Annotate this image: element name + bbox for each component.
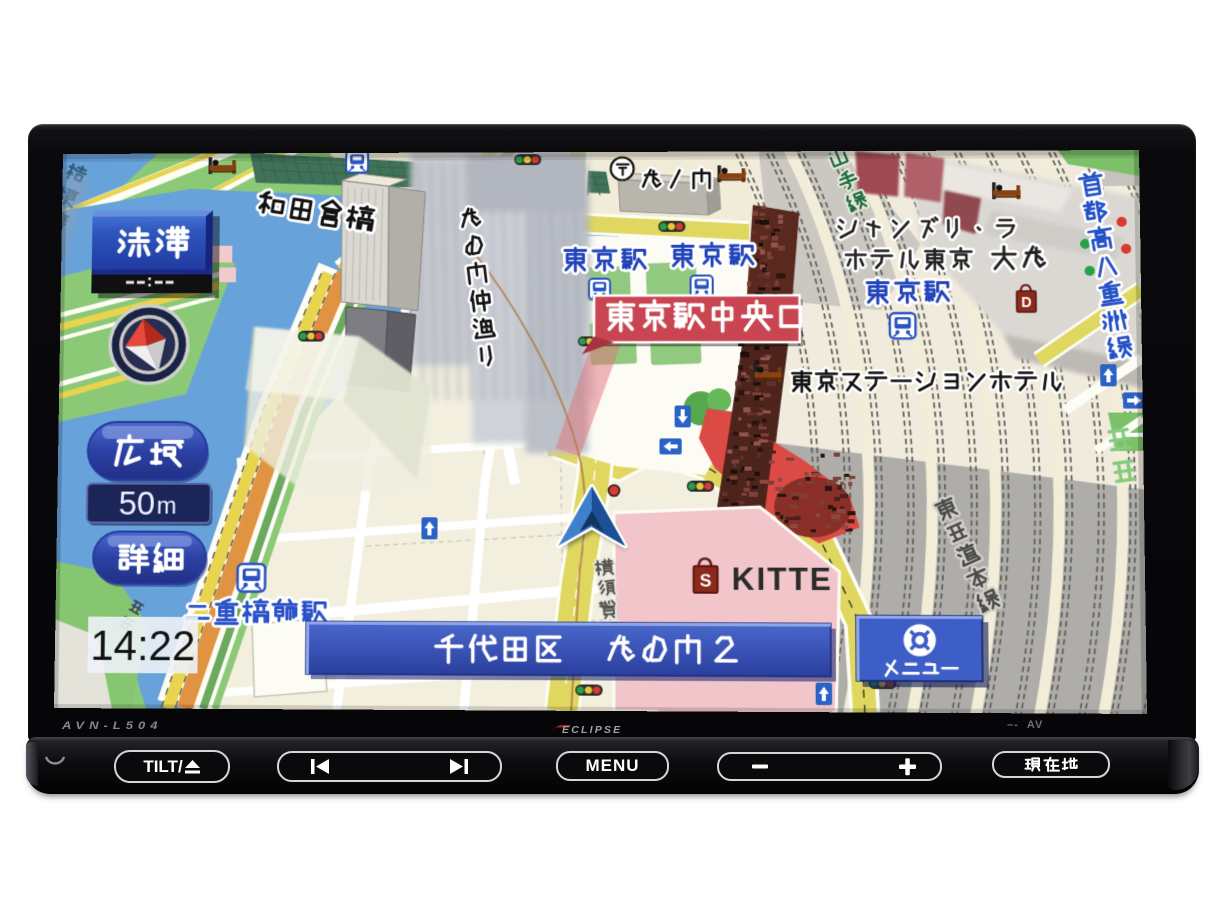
svg-text:KITTE: KITTE: [732, 563, 833, 598]
svg-text:50: 50: [118, 485, 155, 522]
svg-text:S: S: [700, 571, 712, 591]
svg-text:m: m: [156, 492, 176, 519]
svg-text:ECLIPSE: ECLIPSE: [562, 724, 622, 735]
svg-text:14:22: 14:22: [90, 622, 196, 670]
svg-text:D: D: [1021, 295, 1032, 310]
